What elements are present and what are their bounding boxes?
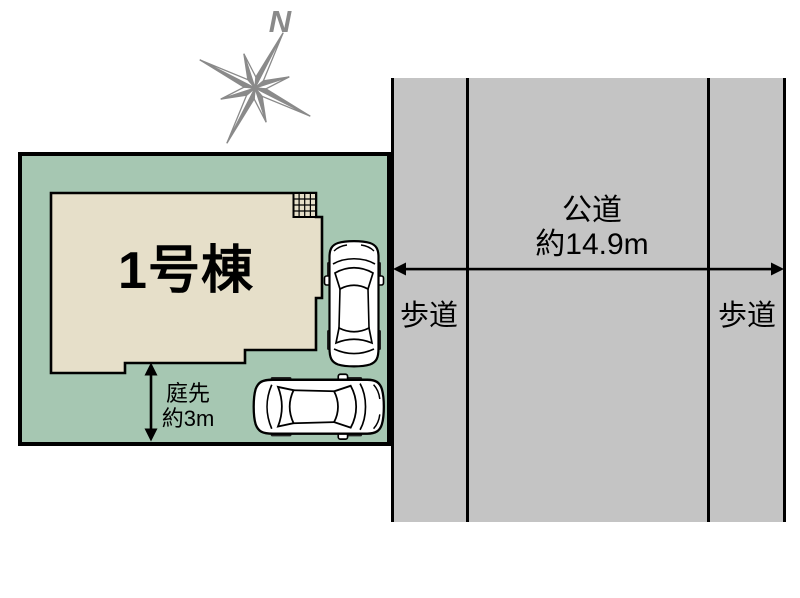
compass-rose-icon bbox=[172, 5, 339, 172]
public-road-label-line2: 約14.9m bbox=[467, 228, 717, 262]
garden-depth-label: 庭先 約3m bbox=[147, 381, 229, 431]
site-plan-diagram: N 1号棟 庭先 約3m 公道 約14.9m 歩道 歩道 bbox=[0, 0, 800, 598]
building-number-label: 1号棟 bbox=[36, 241, 336, 301]
road-width-dimension-arrow bbox=[393, 263, 784, 276]
garden-depth-label-line2: 約3m bbox=[147, 406, 229, 431]
sidewalk-label-right: 歩道 bbox=[708, 299, 786, 333]
public-road-label: 公道 約14.9m bbox=[467, 194, 717, 262]
compass-north-label: N bbox=[260, 4, 300, 40]
public-road-label-line1: 公道 bbox=[467, 194, 717, 228]
sidewalk-label-left: 歩道 bbox=[392, 299, 466, 333]
car-top-view-icon bbox=[254, 374, 384, 439]
balcony-grid-icon bbox=[294, 193, 317, 217]
garden-depth-label-line1: 庭先 bbox=[147, 381, 229, 406]
